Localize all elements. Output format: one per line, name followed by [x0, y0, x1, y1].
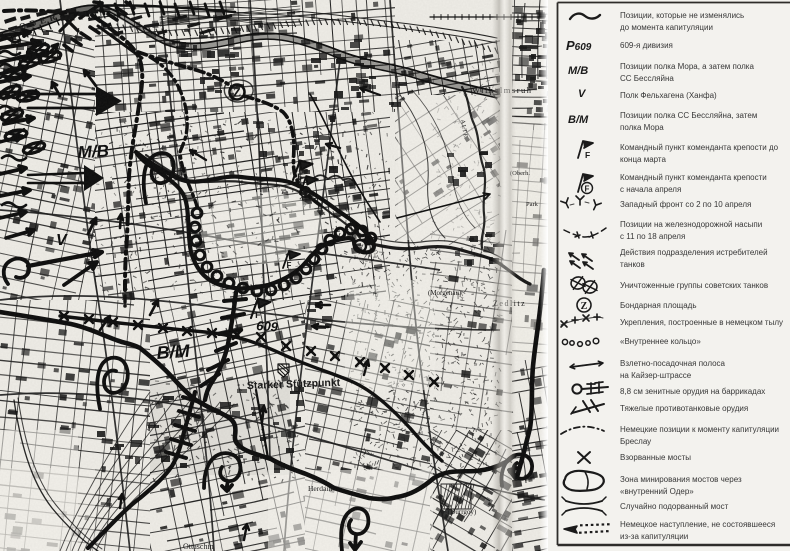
svg-text:Немецкие позиции к моменту кап: Немецкие позиции к моменту капитуляции: [620, 425, 779, 434]
svg-text:«Внутреннее кольцо»: «Внутреннее кольцо»: [620, 337, 701, 346]
svg-text:F: F: [585, 150, 590, 160]
svg-text:с 11 по 18 апреля: с 11 по 18 апреля: [620, 232, 685, 241]
svg-text:танков: танков: [620, 260, 645, 269]
svg-text:Командный пункт коменданта кре: Командный пункт коменданта крепости: [620, 173, 767, 182]
svg-text:Позиции на железнодорожной нас: Позиции на железнодорожной насыпи: [620, 220, 762, 229]
svg-text:Командный пункт коменданта кре: Командный пункт коменданта крепости до: [620, 143, 779, 152]
svg-text:Тяжелые противотанковые орудия: Тяжелые противотанковые орудия: [620, 404, 748, 413]
svg-text:B/M: B/M: [568, 114, 589, 126]
svg-text:полка Мора: полка Мора: [620, 123, 664, 132]
svg-text:Взлетно-посадочная полоса: Взлетно-посадочная полоса: [620, 359, 726, 368]
svg-text:с начала апреля: с начала апреля: [620, 185, 681, 194]
svg-text:609-я дивизия: 609-я дивизия: [620, 41, 673, 50]
svg-text:конца марта: конца марта: [620, 155, 667, 164]
svg-text:M/B: M/B: [568, 65, 588, 77]
svg-text:Позиции полка СС Бессляйна, за: Позиции полка СС Бессляйна, затем: [620, 111, 757, 120]
svg-text:Взорванные мосты: Взорванные мосты: [620, 453, 691, 462]
svg-text:до момента капитуляции: до момента капитуляции: [620, 23, 713, 32]
svg-text:«внутренний Одер»: «внутренний Одер»: [620, 487, 694, 496]
svg-text:Бондарная площадь: Бондарная площадь: [620, 301, 697, 310]
svg-text:Z: Z: [581, 301, 588, 312]
svg-text:Позиции, которые не изменялись: Позиции, которые не изменялись: [620, 11, 744, 20]
svg-text:СС Бессляйна: СС Бессляйна: [620, 74, 674, 83]
svg-text:F: F: [585, 185, 590, 194]
svg-text:Уничтоженные группы советских: Уничтоженные группы советских танков: [620, 281, 768, 290]
svg-text:Западный фронт со 2 по 10 апре: Западный фронт со 2 по 10 апреля: [620, 200, 751, 209]
svg-text:Действия подразделения истреби: Действия подразделения истребителей: [620, 248, 768, 257]
svg-text:из-за капитуляции: из-за капитуляции: [620, 532, 688, 541]
svg-text:Немецкое наступление, не состо: Немецкое наступление, не состоявшееся: [620, 520, 775, 529]
svg-text:Укрепления, построенные в неме: Укрепления, построенные в немецком тылу: [620, 318, 783, 327]
svg-text:8,8 см зенитные орудия на барр: 8,8 см зенитные орудия на баррикадах: [620, 387, 765, 396]
svg-text:Зона минирования мостов через: Зона минирования мостов через: [620, 475, 742, 484]
svg-text:Случайно подорванный мост: Случайно подорванный мост: [620, 502, 729, 511]
svg-text:Полк Фельхагена (Ханфа): Полк Фельхагена (Ханфа): [620, 91, 717, 100]
svg-text:Бреслау: Бреслау: [620, 437, 651, 446]
svg-text:Позиции полка Мора, а затем по: Позиции полка Мора, а затем полка: [620, 62, 754, 71]
svg-text:на Кайзер-штрассе: на Кайзер-штрассе: [620, 371, 692, 380]
